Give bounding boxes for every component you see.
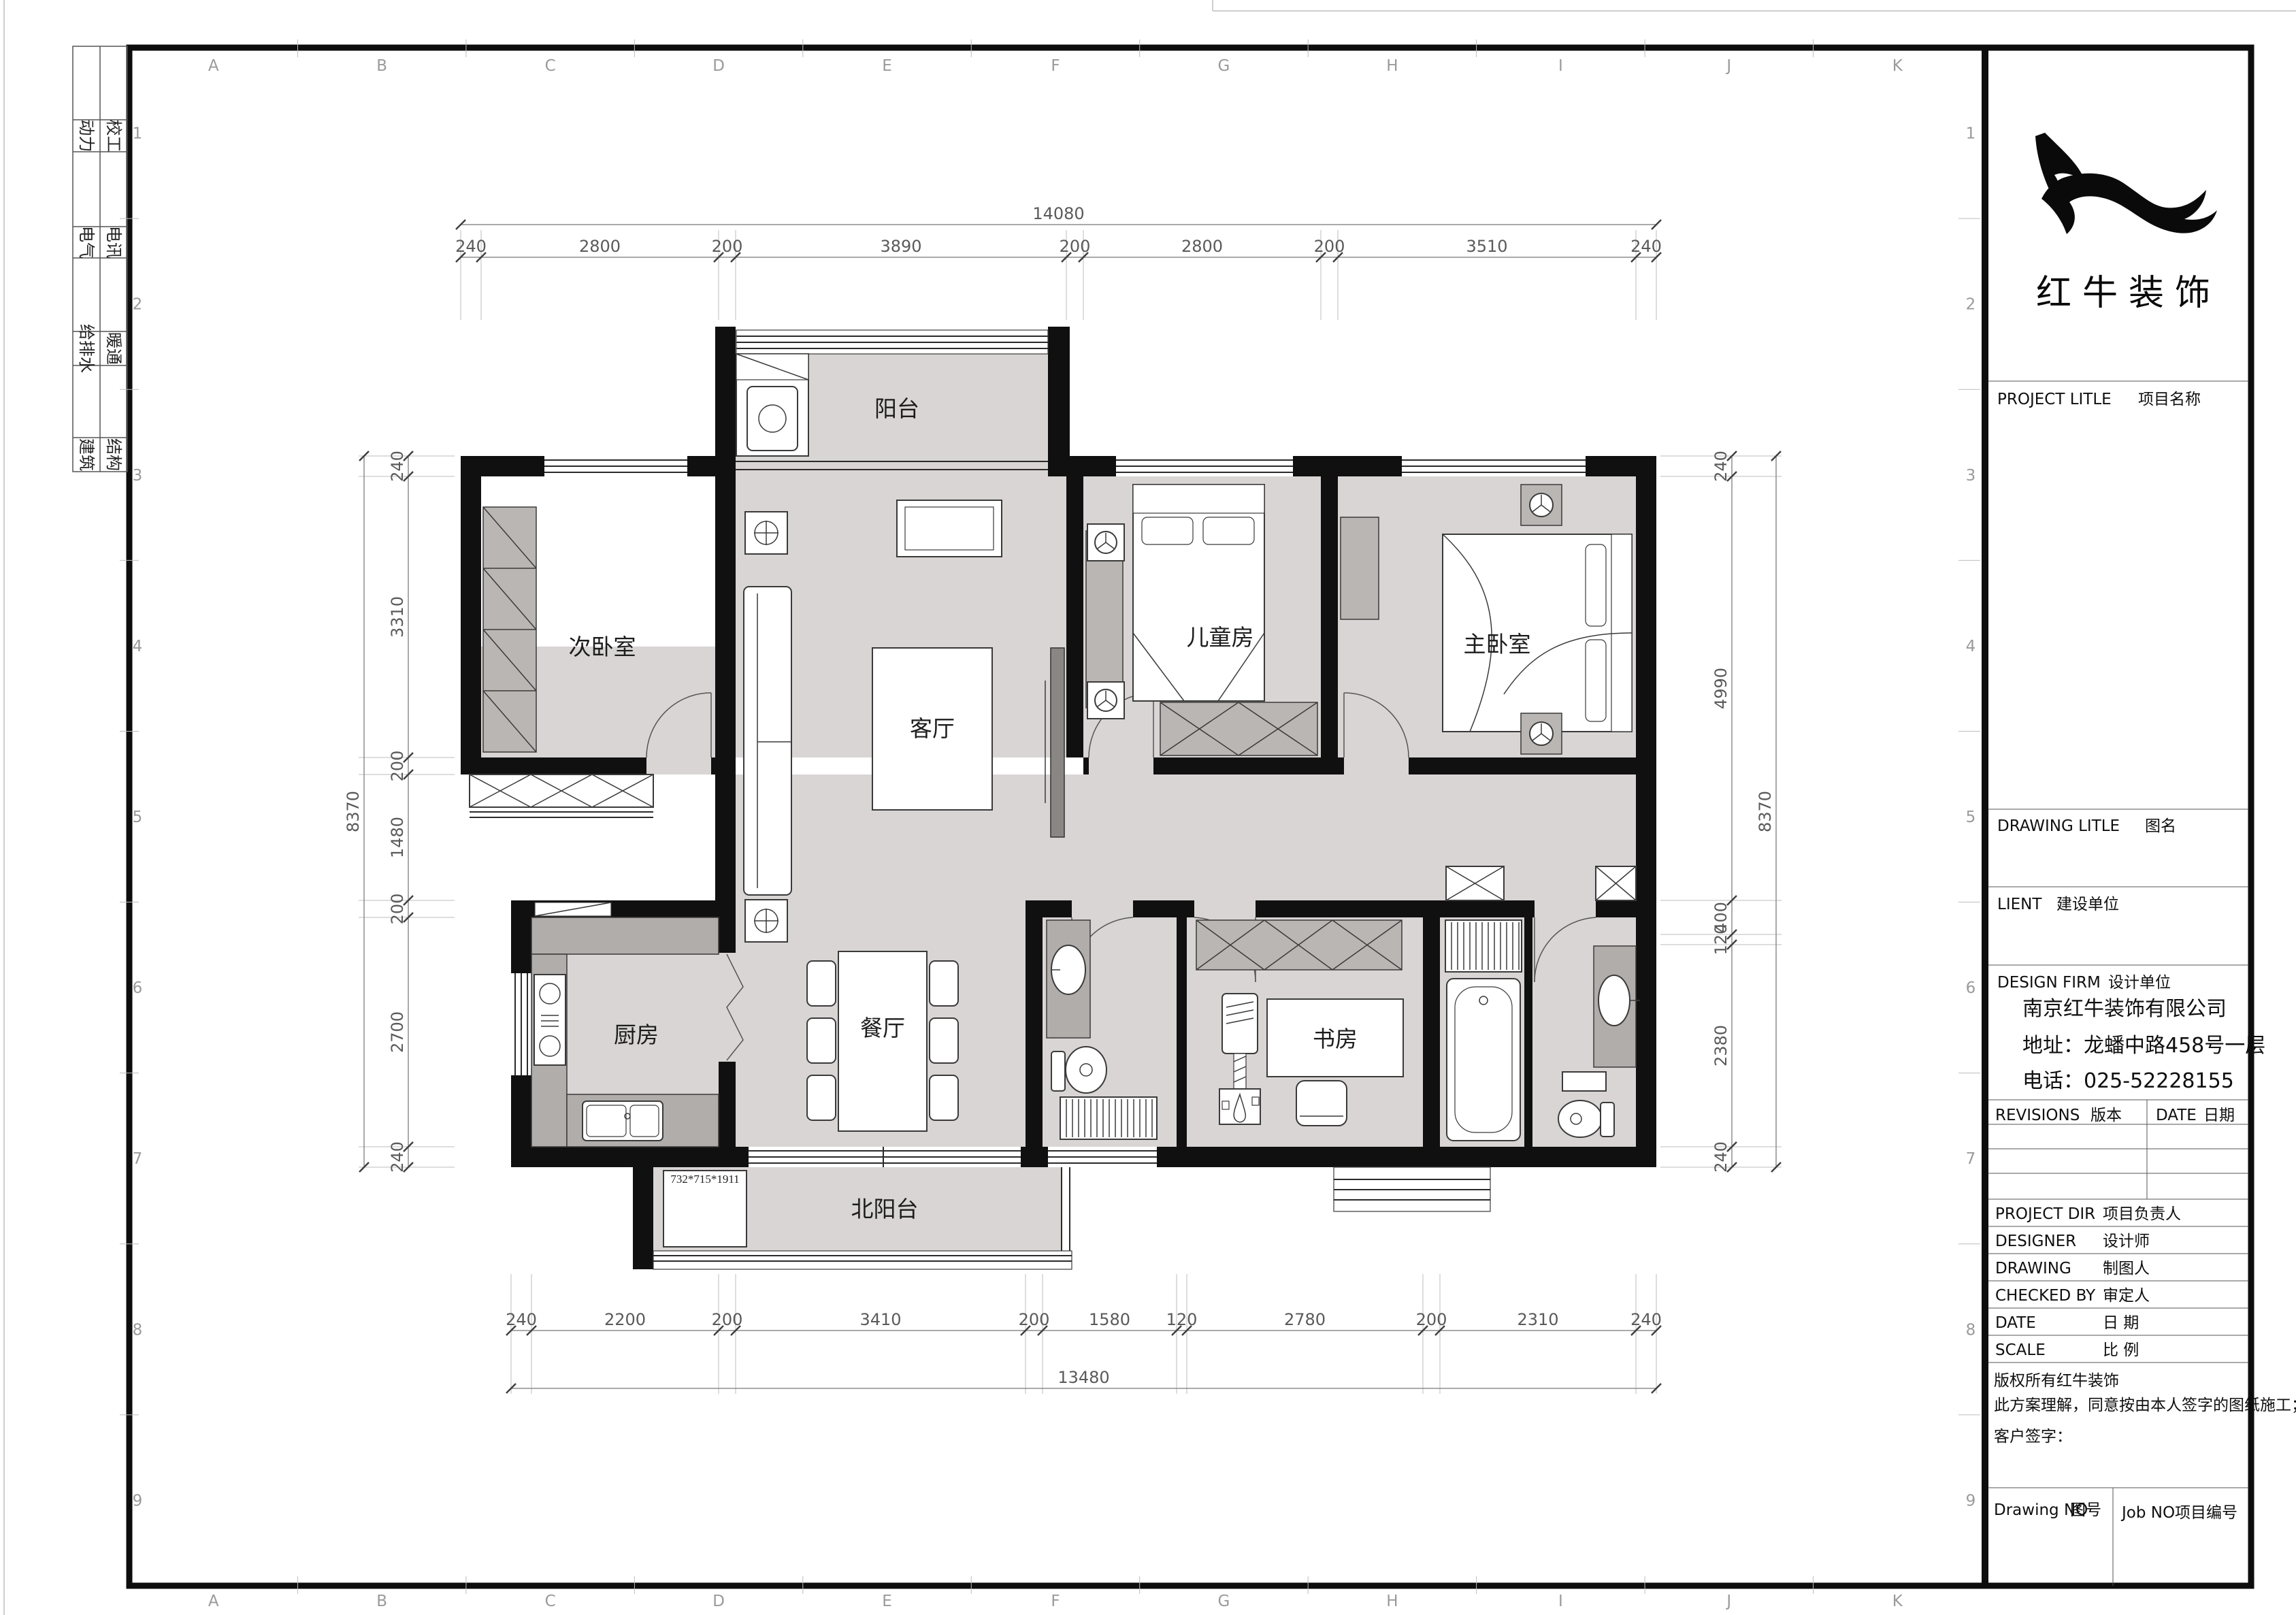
window-kids-room xyxy=(1116,460,1293,472)
job-no-en: Job NO xyxy=(2120,1504,2175,1522)
dim-label: 200 xyxy=(1416,1310,1447,1329)
master-dresser xyxy=(1341,517,1379,619)
grid-letter-bottom: F xyxy=(1051,1593,1060,1610)
grid-number-right: 8 xyxy=(1966,1321,1976,1339)
row-drawing-cn: 制图人 xyxy=(2103,1260,2150,1277)
grid-letter-bottom: D xyxy=(712,1593,725,1610)
fan-icon xyxy=(1087,682,1124,719)
dim-label: 120 xyxy=(1711,924,1731,956)
grid-letter-bottom: A xyxy=(208,1593,219,1610)
design-firm-cn: 设计单位 xyxy=(2108,974,2171,992)
fan-icon xyxy=(1521,713,1562,754)
project-title-cn: 项目名称 xyxy=(2138,391,2201,408)
grid-number-left: 6 xyxy=(133,979,143,997)
discipline-label: 给排水 xyxy=(77,324,96,373)
grid-letter-top: C xyxy=(545,57,556,75)
grid-number-left: 5 xyxy=(133,809,143,826)
date-col-en: DATE xyxy=(2156,1107,2197,1124)
grid-letter-top: G xyxy=(1218,57,1230,75)
corridor-closet xyxy=(1596,866,1636,900)
dim-label: 200 xyxy=(388,751,407,782)
grid-letter-top: A xyxy=(208,57,219,75)
bay-window-study xyxy=(1334,1167,1490,1211)
dim-label: 240 xyxy=(1630,237,1662,256)
job-no-cn: 项目编号 xyxy=(2175,1504,2237,1522)
label-study: 书房 xyxy=(1313,1027,1358,1052)
wardrobe-second-bedroom xyxy=(483,507,536,752)
dim-label: 240 xyxy=(1711,451,1731,482)
row-project-dir-cn: 项目负责人 xyxy=(2103,1205,2181,1223)
dim-label: 200 xyxy=(712,237,743,256)
dim-overall-label: 8370 xyxy=(1756,791,1775,832)
dim-label: 200 xyxy=(388,894,407,925)
row-checked-by-en: CHECKED BY xyxy=(1995,1287,2096,1305)
fan-icon xyxy=(1087,524,1124,561)
label-kids-room: 儿童房 xyxy=(1187,625,1254,651)
grid-number-right: 4 xyxy=(1966,638,1976,655)
copyright-line2: 此方案理解，同意按由本人签字的图纸施工； xyxy=(1994,1397,2296,1414)
dim-label: 120 xyxy=(1166,1310,1198,1329)
discipline-label: 电讯 xyxy=(104,226,123,259)
cabinet-size-annotation: 732*715*1911 xyxy=(670,1173,739,1186)
dim-label: 1580 xyxy=(1089,1310,1130,1329)
label-master-bedroom: 主卧室 xyxy=(1464,632,1531,657)
dim-label: 3510 xyxy=(1466,237,1507,256)
dim-label: 240 xyxy=(388,1141,407,1173)
revisions-cn: 版本 xyxy=(2090,1107,2122,1124)
discipline-label: 校工 xyxy=(104,120,123,152)
dim-label: 1480 xyxy=(388,817,407,858)
grid-number-right: 1 xyxy=(1966,125,1976,143)
row-checked-by-cn: 审定人 xyxy=(2103,1287,2150,1305)
bathtub xyxy=(1447,979,1520,1141)
dim-label: 2700 xyxy=(388,1011,407,1053)
dim-label: 200 xyxy=(712,1310,743,1329)
dim-label: 240 xyxy=(1711,1141,1731,1173)
grid-letter-top: E xyxy=(882,57,892,75)
label-living: 客厅 xyxy=(910,717,955,742)
design-firm-en: DESIGN FIRM xyxy=(1997,974,2101,992)
window-second-bedroom xyxy=(544,460,687,472)
bath1-toilet xyxy=(1051,1047,1106,1093)
label-balcony: 阳台 xyxy=(874,397,919,422)
grid-letter-top: D xyxy=(712,57,725,75)
window-kitchen xyxy=(515,973,527,1075)
bath1-shower-screen xyxy=(1060,1097,1157,1139)
bath2-shelf xyxy=(1562,1072,1606,1091)
client-cn: 建设单位 xyxy=(2056,896,2119,913)
laundry-shutter xyxy=(1445,920,1522,972)
dim-label: 4990 xyxy=(1711,668,1731,709)
grid-number-right: 2 xyxy=(1966,296,1976,314)
grid-number-left: 8 xyxy=(133,1321,143,1339)
grid-number-left: 3 xyxy=(133,467,143,485)
stove xyxy=(534,975,565,1065)
grid-number-right: 9 xyxy=(1966,1492,1976,1510)
grid-number-left: 9 xyxy=(133,1492,143,1510)
row-date-en: DATE xyxy=(1995,1314,2036,1332)
grid-letter-bottom: C xyxy=(545,1593,556,1610)
dim-label: 2780 xyxy=(1284,1310,1326,1329)
date-col-cn: 日期 xyxy=(2203,1107,2235,1124)
row-project-dir-en: PROJECT DIR xyxy=(1995,1205,2095,1223)
dim-label: 240 xyxy=(1630,1310,1662,1329)
dim-label: 200 xyxy=(1060,237,1091,256)
label-north-balcony: 北阳台 xyxy=(851,1197,919,1222)
dim-label: 2200 xyxy=(604,1310,646,1329)
row-date-cn: 日 期 xyxy=(2103,1314,2139,1332)
floor-outlet-icon xyxy=(745,900,787,942)
grid-number-right: 6 xyxy=(1966,979,1976,997)
dim-label: 3410 xyxy=(859,1310,901,1329)
grid-letter-top: F xyxy=(1051,57,1060,75)
margin-discipline-table: 动力校工电气电讯给排水暖通建筑结构 xyxy=(73,46,127,472)
drawing-title-cn: 图名 xyxy=(2145,817,2176,835)
dim-label: 3890 xyxy=(880,237,921,256)
dim-label: 2310 xyxy=(1517,1310,1558,1329)
grid-letter-top: K xyxy=(1892,57,1903,75)
row-scale-en: SCALE xyxy=(1995,1341,2046,1359)
brand-name: 红牛装饰 xyxy=(2036,274,2221,313)
north-balcony-sliding-door xyxy=(749,1147,1021,1167)
row-designer-cn: 设计师 xyxy=(2103,1233,2150,1250)
kitchen-sink xyxy=(583,1101,663,1141)
row-designer-en: DESIGNER xyxy=(1995,1233,2076,1250)
company-phone: 电话：025-52228155 xyxy=(2022,1069,2234,1093)
discipline-label: 暖通 xyxy=(104,332,123,365)
label-dining: 餐厅 xyxy=(860,1016,905,1041)
label-second-bedroom: 次卧室 xyxy=(569,635,636,660)
grid-letter-top: B xyxy=(376,57,387,75)
grid-letter-bottom: H xyxy=(1386,1593,1398,1610)
label-kitchen: 厨房 xyxy=(614,1023,659,1048)
painting xyxy=(897,500,1002,557)
dim-label: 200 xyxy=(1019,1310,1050,1329)
dining-table xyxy=(838,951,927,1131)
fan-icon xyxy=(1521,485,1562,525)
discipline-label: 电气 xyxy=(77,226,96,259)
corridor-closet xyxy=(1446,866,1504,900)
grid-number-right: 5 xyxy=(1966,809,1976,826)
dim-label: 240 xyxy=(388,451,407,482)
grid-letter-bottom: G xyxy=(1218,1593,1230,1610)
grid-number-left: 7 xyxy=(133,1150,143,1168)
row-drawing-en: DRAWING xyxy=(1995,1260,2071,1277)
window-master-bedroom xyxy=(1402,460,1586,472)
discipline-label: 结构 xyxy=(104,438,123,471)
dim-label: 200 xyxy=(1314,237,1345,256)
balcony-glazing xyxy=(736,330,1048,354)
company-address: 地址：龙蟠中路458号一层 xyxy=(2022,1034,2265,1058)
sofa xyxy=(744,587,791,895)
dim-overall-label: 8370 xyxy=(344,791,363,832)
floor-outlet-icon xyxy=(745,512,787,554)
grid-letter-bottom: B xyxy=(376,1593,387,1610)
drawing-no-cn: 图号 xyxy=(2070,1501,2101,1519)
discipline-label: 建筑 xyxy=(77,438,96,471)
bay-window-second-bedroom xyxy=(470,774,653,817)
row-scale-cn: 比 例 xyxy=(2103,1341,2139,1359)
company-name: 南京红牛装饰有限公司 xyxy=(2022,997,2227,1021)
grid-letter-bottom: K xyxy=(1892,1593,1903,1610)
bath1-vanity xyxy=(1047,920,1090,1038)
dim-label: 240 xyxy=(455,237,487,256)
kids-bed xyxy=(1133,485,1264,701)
floor-plan: 阳台 次卧室 客厅 儿童房 主卧室 厨房 餐厅 书房 北阳台 732*715*1… xyxy=(461,327,1656,1269)
dim-label: 240 xyxy=(506,1310,537,1329)
customer-sign-label: 客户签字： xyxy=(1994,1428,2072,1446)
study-chair xyxy=(1296,1081,1347,1126)
window-bath xyxy=(1048,1151,1157,1163)
grid-number-left: 4 xyxy=(133,638,143,655)
grid-number-right: 3 xyxy=(1966,467,1976,485)
study-wardrobe xyxy=(1196,920,1402,970)
dim-label: 2800 xyxy=(579,237,621,256)
client-en: LIENT xyxy=(1997,896,2042,913)
drawing-sheet: 动力校工电气电讯给排水暖通建筑结构 AABBCCDDEEFFGGHHIIJJKK… xyxy=(0,0,2296,1615)
grid-number-right: 7 xyxy=(1966,1150,1976,1168)
bath2-toilet xyxy=(1558,1100,1614,1137)
grid-letter-bottom: I xyxy=(1558,1593,1563,1610)
grid-number-left: 1 xyxy=(133,125,143,143)
grid-letter-top: H xyxy=(1386,57,1398,75)
grid-letter-top: J xyxy=(1725,57,1731,75)
dim-label: 2380 xyxy=(1711,1025,1731,1066)
company-logo xyxy=(2035,133,2217,234)
grid-letter-bottom: E xyxy=(882,1593,892,1610)
dim-label: 3310 xyxy=(388,596,407,638)
discipline-label: 动力 xyxy=(77,120,96,152)
titleblock-divider xyxy=(1982,48,1988,1586)
dim-label: 2800 xyxy=(1181,237,1223,256)
grid-number-left: 2 xyxy=(133,296,143,314)
balcony-washer-closet xyxy=(736,354,808,456)
grid-letter-top: I xyxy=(1558,57,1563,75)
drawing-title-en: DRAWING LITLE xyxy=(1997,817,2120,835)
copyright-line1: 版权所有红牛装饰 xyxy=(1994,1372,2119,1390)
revisions-en: REVISIONS xyxy=(1995,1107,2080,1124)
bath2-vanity xyxy=(1594,946,1640,1067)
grid-letter-bottom: J xyxy=(1725,1593,1731,1610)
dim-overall-label: 13480 xyxy=(1057,1368,1109,1387)
project-title-en: PROJECT LITLE xyxy=(1997,391,2112,408)
kids-wardrobe xyxy=(1160,702,1317,755)
dim-overall-label: 14080 xyxy=(1032,204,1084,223)
